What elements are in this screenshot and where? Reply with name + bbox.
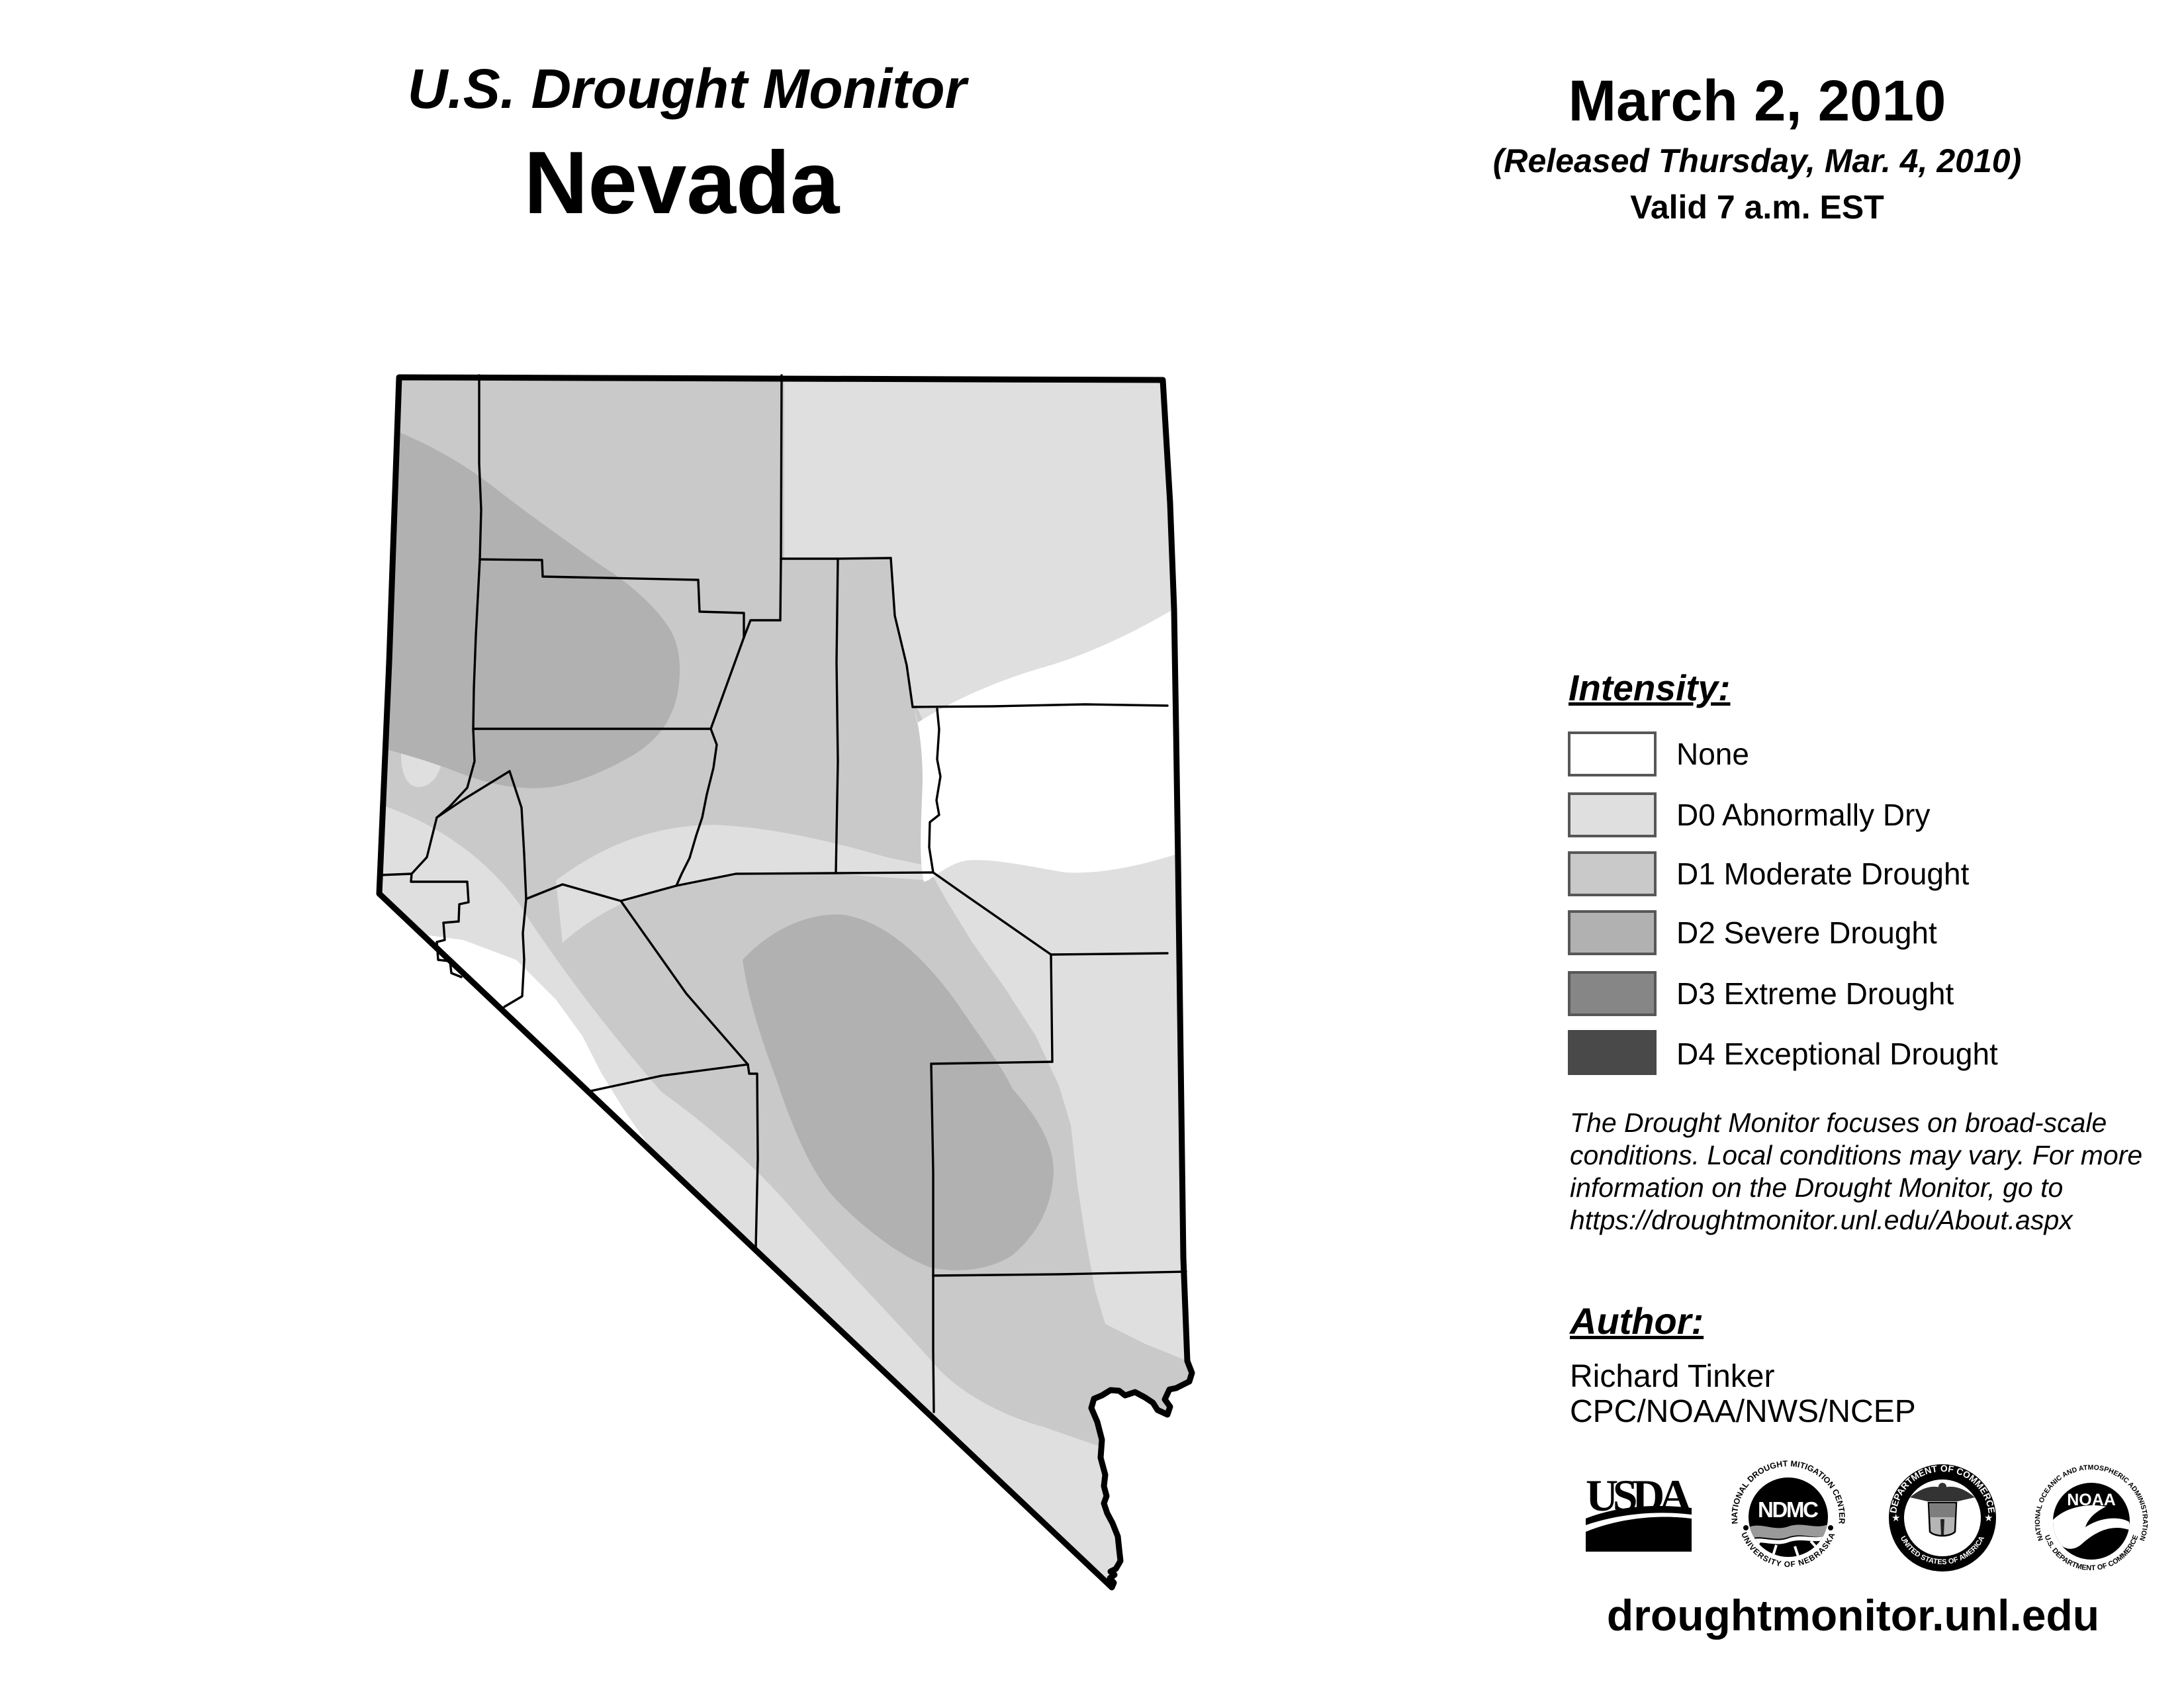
svg-text:★: ★ bbox=[1891, 1513, 1900, 1524]
svg-text:★: ★ bbox=[1984, 1513, 1993, 1524]
svg-text:NDMC: NDMC bbox=[1758, 1497, 1819, 1522]
